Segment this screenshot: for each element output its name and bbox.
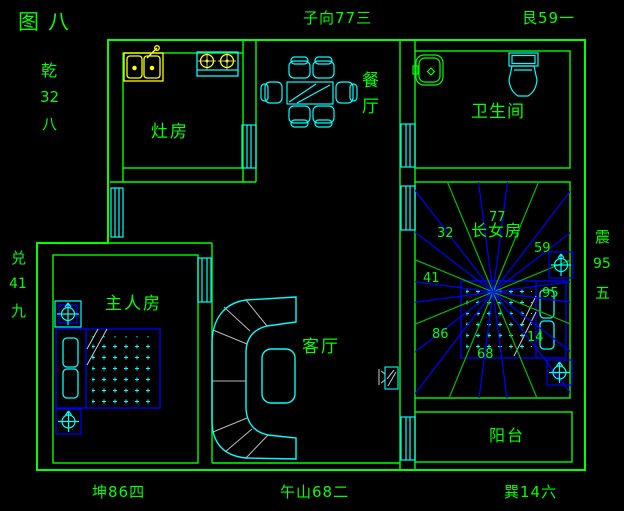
label-zhen-rank: 五 — [595, 285, 610, 302]
room-label-bathroom: 卫生间 — [471, 103, 525, 122]
master-bed-icon — [56, 329, 160, 408]
daughter-door-window-icon — [401, 186, 415, 230]
compass-marker-icon — [551, 254, 571, 276]
stove-icon — [197, 52, 238, 76]
label-qian: 乾 — [41, 62, 57, 80]
kitchen-sink-icon — [124, 46, 163, 81]
label-dui-rank: 九 — [11, 303, 26, 320]
label-zhen-number: 95 — [593, 257, 611, 272]
bathroom-door-window-icon — [401, 124, 415, 167]
room-label-kitchen: 灶房 — [151, 123, 189, 142]
sector-number-ne: 59 — [534, 242, 551, 256]
label-dui-number: 41 — [9, 277, 27, 292]
room-label-balcony: 阳台 — [489, 427, 525, 445]
label-qian-rank: 八 — [42, 116, 57, 133]
daughter-compass-marker-bottom — [547, 360, 572, 385]
compass-ray — [411, 292, 493, 491]
washbasin-icon — [413, 55, 443, 85]
master-bedroom-door-window-icon — [198, 258, 211, 302]
compass-ray — [362, 292, 493, 463]
entry-window-icon — [111, 188, 123, 237]
compass-ray — [294, 292, 493, 374]
master-nightstand-compass-top — [55, 301, 81, 327]
compass-marker-icon — [549, 362, 570, 383]
compass-ray — [294, 210, 493, 292]
dining-chairs — [261, 57, 357, 127]
compass-ray — [493, 292, 575, 491]
master-nightstand-compass-bottom — [56, 409, 81, 434]
compass-ray — [411, 93, 493, 292]
coffee-table-icon — [262, 349, 295, 403]
toilet-icon — [509, 53, 538, 96]
compass-marker-icon — [58, 411, 79, 432]
room-label-master-bedroom: 主人房 — [105, 295, 162, 314]
label-gen: 艮59一 — [522, 10, 575, 27]
room-label-dining: 餐厅 — [362, 68, 381, 120]
compass-ray — [493, 93, 575, 292]
floorplan-canvas — [0, 0, 624, 511]
sofa-icon — [212, 297, 296, 459]
cad-floorplan-view: 图八 乾 32 八 子向77三 艮59一 兑 41 九 震 95 五 坤86四 … — [0, 0, 624, 511]
sector-number-s: 68 — [477, 348, 494, 362]
sector-number-se: 14 — [527, 331, 544, 345]
tv-icon — [379, 367, 398, 389]
label-facing-zi: 子向77三 — [303, 10, 372, 27]
sector-number-sw: 86 — [432, 328, 449, 342]
figure-title: 图八 — [18, 11, 78, 34]
sector-number-n: 77 — [489, 211, 506, 225]
sector-number-w: 41 — [423, 272, 440, 286]
sector-number-nw: 32 — [437, 227, 454, 241]
kitchen-window-icon — [242, 125, 256, 168]
label-dui: 兑 — [11, 250, 26, 267]
room-label-living-room: 客厅 — [302, 338, 340, 357]
label-wushan: 午山68二 — [280, 484, 349, 501]
label-qian-number: 32 — [40, 89, 59, 106]
label-kun: 坤86四 — [92, 484, 145, 501]
label-zhen: 震 — [595, 229, 610, 246]
balcony-door-window-icon — [401, 417, 415, 460]
dining-table-icon — [287, 82, 333, 104]
label-xun: 巽14六 — [504, 484, 557, 501]
compass-ray — [362, 121, 493, 292]
compass-ray — [322, 161, 493, 292]
compass-marker-icon — [57, 303, 79, 325]
sector-number-e: 95 — [542, 287, 559, 301]
